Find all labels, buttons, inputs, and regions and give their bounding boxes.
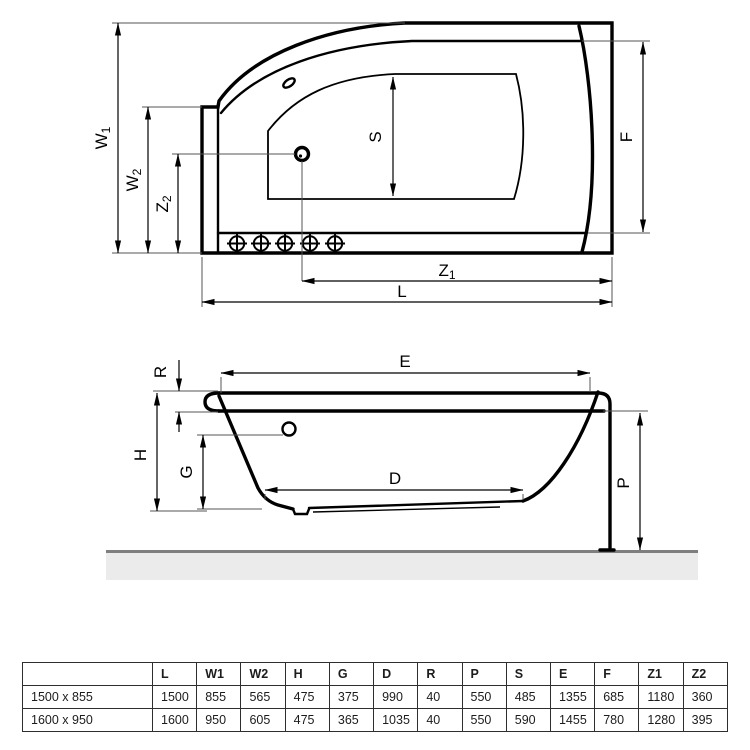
table-header-cell: S — [506, 663, 550, 686]
table-header-cell: L — [153, 663, 197, 686]
side-view: E R H G D P — [106, 352, 698, 580]
basin-outline — [268, 74, 523, 199]
table-cell: 375 — [329, 686, 373, 709]
table-cell: 475 — [285, 686, 329, 709]
table-cell: 990 — [374, 686, 418, 709]
tub-outer-outline — [202, 23, 612, 253]
table-cell: 1500 x 855 — [23, 686, 153, 709]
table-cell: 1455 — [550, 709, 594, 732]
dim-label-g: G — [177, 465, 196, 478]
table-header-cell: G — [329, 663, 373, 686]
apron-profile — [219, 396, 293, 509]
rim-inner-curve — [221, 41, 580, 113]
dim-label-p: P — [614, 477, 633, 488]
dimensions-table: LW1W2HGDRPSEFZ1Z21500 x 8551500855565475… — [22, 662, 728, 732]
table-header-cell: D — [374, 663, 418, 686]
table-cell: 590 — [506, 709, 550, 732]
rim-inner-right-curve — [579, 26, 592, 252]
table-cell: 950 — [197, 709, 241, 732]
table-header-cell: W1 — [197, 663, 241, 686]
table-header-cell: E — [550, 663, 594, 686]
dim-label-w1: W1 — [92, 126, 113, 149]
table-cell: 780 — [595, 709, 639, 732]
table-cell: 565 — [241, 686, 285, 709]
table-header-cell: F — [595, 663, 639, 686]
jet-nozzle-icon — [325, 234, 345, 254]
table-header-cell: Z1 — [639, 663, 683, 686]
table-header-cell: H — [285, 663, 329, 686]
faucet-hole — [296, 148, 309, 161]
bathtub-spec-sheet: W1 W2 Z2 S F Z1 L — [0, 0, 750, 750]
dim-label-e: E — [399, 352, 410, 371]
table-cell: 1280 — [639, 709, 683, 732]
jet-nozzle-icon — [300, 234, 320, 254]
table-cell: 1035 — [374, 709, 418, 732]
dim-label-z2: Z2 — [153, 195, 174, 212]
dim-label-s: S — [366, 131, 385, 142]
dim-label-z1: Z1 — [438, 261, 455, 282]
jet-nozzle-icon — [227, 234, 247, 254]
dim-label-f: F — [617, 132, 636, 142]
table-cell: 485 — [506, 686, 550, 709]
dim-label-w2: W2 — [123, 168, 144, 191]
dim-label-r: R — [151, 366, 170, 378]
technical-drawing: W1 W2 Z2 S F Z1 L — [0, 0, 750, 640]
table-cell: 395 — [683, 709, 727, 732]
rim-left-cap — [205, 393, 219, 411]
overflow-hole — [282, 76, 297, 89]
bottom-notch — [293, 509, 309, 514]
table-cell: 1500 — [153, 686, 197, 709]
jet-nozzle-icon — [275, 234, 295, 254]
overflow-hole-side — [283, 423, 296, 436]
back-wall-curve — [523, 392, 598, 501]
table-cell: 1600 — [153, 709, 197, 732]
top-view: W1 W2 Z2 S F Z1 L — [92, 23, 650, 307]
table-cell: 685 — [595, 686, 639, 709]
jet-nozzle-icon — [251, 234, 271, 254]
table-row: 1500 x 855150085556547537599040550485135… — [23, 686, 728, 709]
table-header-row: LW1W2HGDRPSEFZ1Z2 — [23, 663, 728, 686]
jet-row — [227, 234, 345, 254]
dim-label-h: H — [131, 449, 150, 461]
table-header-cell: Z2 — [683, 663, 727, 686]
dim-label-l: L — [397, 282, 406, 301]
table-cell: 605 — [241, 709, 285, 732]
table-cell: 40 — [418, 686, 462, 709]
table-cell: 365 — [329, 709, 373, 732]
table-cell: 550 — [462, 709, 506, 732]
table-cell: 1600 x 950 — [23, 709, 153, 732]
table-header-cell — [23, 663, 153, 686]
table-row: 1600 x 950160095060547536510354055059014… — [23, 709, 728, 732]
table-header-cell: W2 — [241, 663, 285, 686]
table-cell: 475 — [285, 709, 329, 732]
table-cell: 855 — [197, 686, 241, 709]
table-header-cell: R — [418, 663, 462, 686]
table-cell: 1355 — [550, 686, 594, 709]
faucet-hole-mark — [299, 154, 302, 157]
floor — [106, 553, 698, 580]
table-header-cell: P — [462, 663, 506, 686]
table-cell: 40 — [418, 709, 462, 732]
table-cell: 1180 — [639, 686, 683, 709]
table-cell: 360 — [683, 686, 727, 709]
table-cell: 550 — [462, 686, 506, 709]
dim-label-d: D — [389, 469, 401, 488]
rim-profile — [219, 393, 610, 548]
